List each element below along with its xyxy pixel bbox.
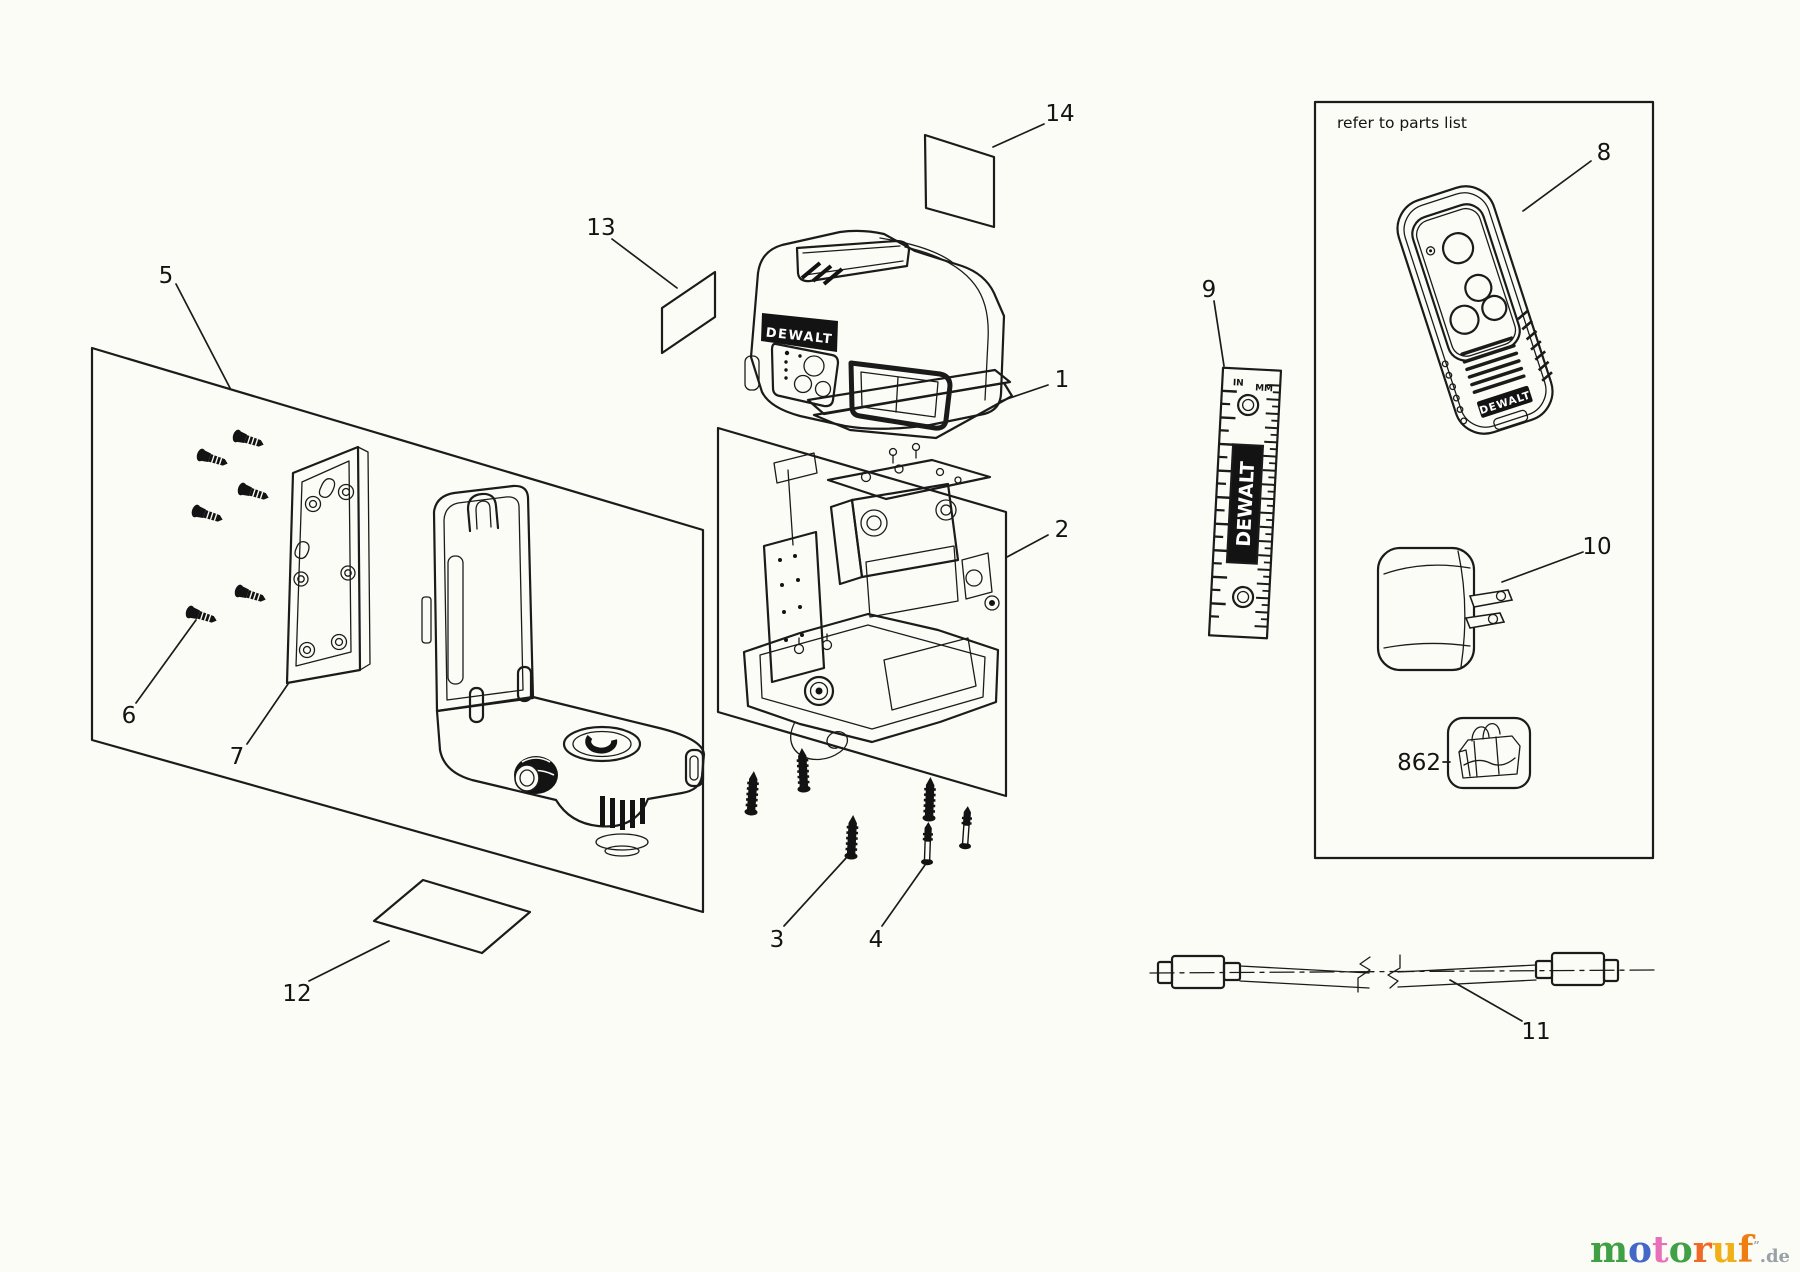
- parts-list-note: refer to parts list: [1337, 114, 1467, 132]
- diagram-canvas: DEWALT: [0, 0, 1800, 1272]
- leader-1: [1001, 385, 1048, 401]
- watermark-letter: t: [1652, 1229, 1669, 1271]
- leader-14: [993, 124, 1044, 147]
- watermark-letter: u: [1712, 1229, 1738, 1271]
- callout-8: 8: [1597, 140, 1612, 166]
- callout-7: 7: [230, 744, 245, 770]
- leader-9: [1214, 301, 1224, 366]
- leader-13: [612, 239, 677, 288]
- remote-control: DEWALT: [1390, 177, 1564, 441]
- callout-6: 6: [122, 703, 137, 729]
- callout-1: 1: [1055, 367, 1070, 393]
- mounting-plate: [287, 447, 370, 683]
- watermark-letter: m: [1590, 1229, 1628, 1271]
- callout-13: 13: [586, 215, 615, 241]
- leader-7: [247, 684, 288, 744]
- ruler-brand-badge: DEWALT: [1233, 461, 1259, 548]
- callout-5: 5: [159, 263, 174, 289]
- label-sticker-12: [374, 880, 530, 953]
- bag-icon: [1448, 718, 1530, 788]
- leader-8: [1523, 161, 1591, 211]
- wall-bracket: [422, 486, 704, 856]
- leader-12: [309, 941, 389, 981]
- callout-9: 9: [1202, 277, 1217, 303]
- leader-lines: [136, 124, 1591, 1021]
- ruler-unit-in: IN: [1233, 378, 1244, 389]
- leader-4: [882, 865, 925, 926]
- watermark-letter: f: [1738, 1229, 1754, 1271]
- callout-11: 11: [1521, 1019, 1550, 1045]
- leader-2: [1007, 535, 1048, 557]
- callout-14: 14: [1045, 101, 1074, 127]
- leader-11: [1450, 980, 1522, 1021]
- watermark-motoruf: motoruf”.de: [1590, 1232, 1790, 1268]
- leader-5: [176, 284, 230, 388]
- inner-assembly: [744, 444, 999, 760]
- callout-2: 2: [1055, 517, 1070, 543]
- callout-10: 10: [1582, 534, 1611, 560]
- watermark-letter: o: [1669, 1229, 1693, 1271]
- parts-diagram-page: DEWALT: [0, 0, 1800, 1272]
- watermark-suffix: .de: [1760, 1246, 1790, 1267]
- callout-3: 3: [770, 927, 785, 953]
- label-sticker-14: [925, 135, 994, 227]
- callout-4: 4: [869, 927, 884, 953]
- watermark-letter: o: [1628, 1229, 1652, 1271]
- usb-charger: [1378, 548, 1512, 670]
- leader-3: [784, 857, 847, 926]
- label-sticker-13: [662, 272, 715, 353]
- callout-862: 862: [1397, 750, 1441, 776]
- callout-12: 12: [282, 981, 311, 1007]
- base-screws: [744, 748, 974, 866]
- usb-cable: [1150, 953, 1655, 992]
- leader-10: [1502, 552, 1583, 582]
- target-ruler: DEWALT IN MM: [1209, 368, 1281, 639]
- ruler-unit-mm: MM: [1255, 383, 1273, 394]
- watermark-letter: r: [1693, 1229, 1712, 1271]
- left-mounting-screws: [184, 429, 270, 627]
- laser-level-device: DEWALT: [745, 231, 1012, 438]
- leader-6: [136, 620, 196, 703]
